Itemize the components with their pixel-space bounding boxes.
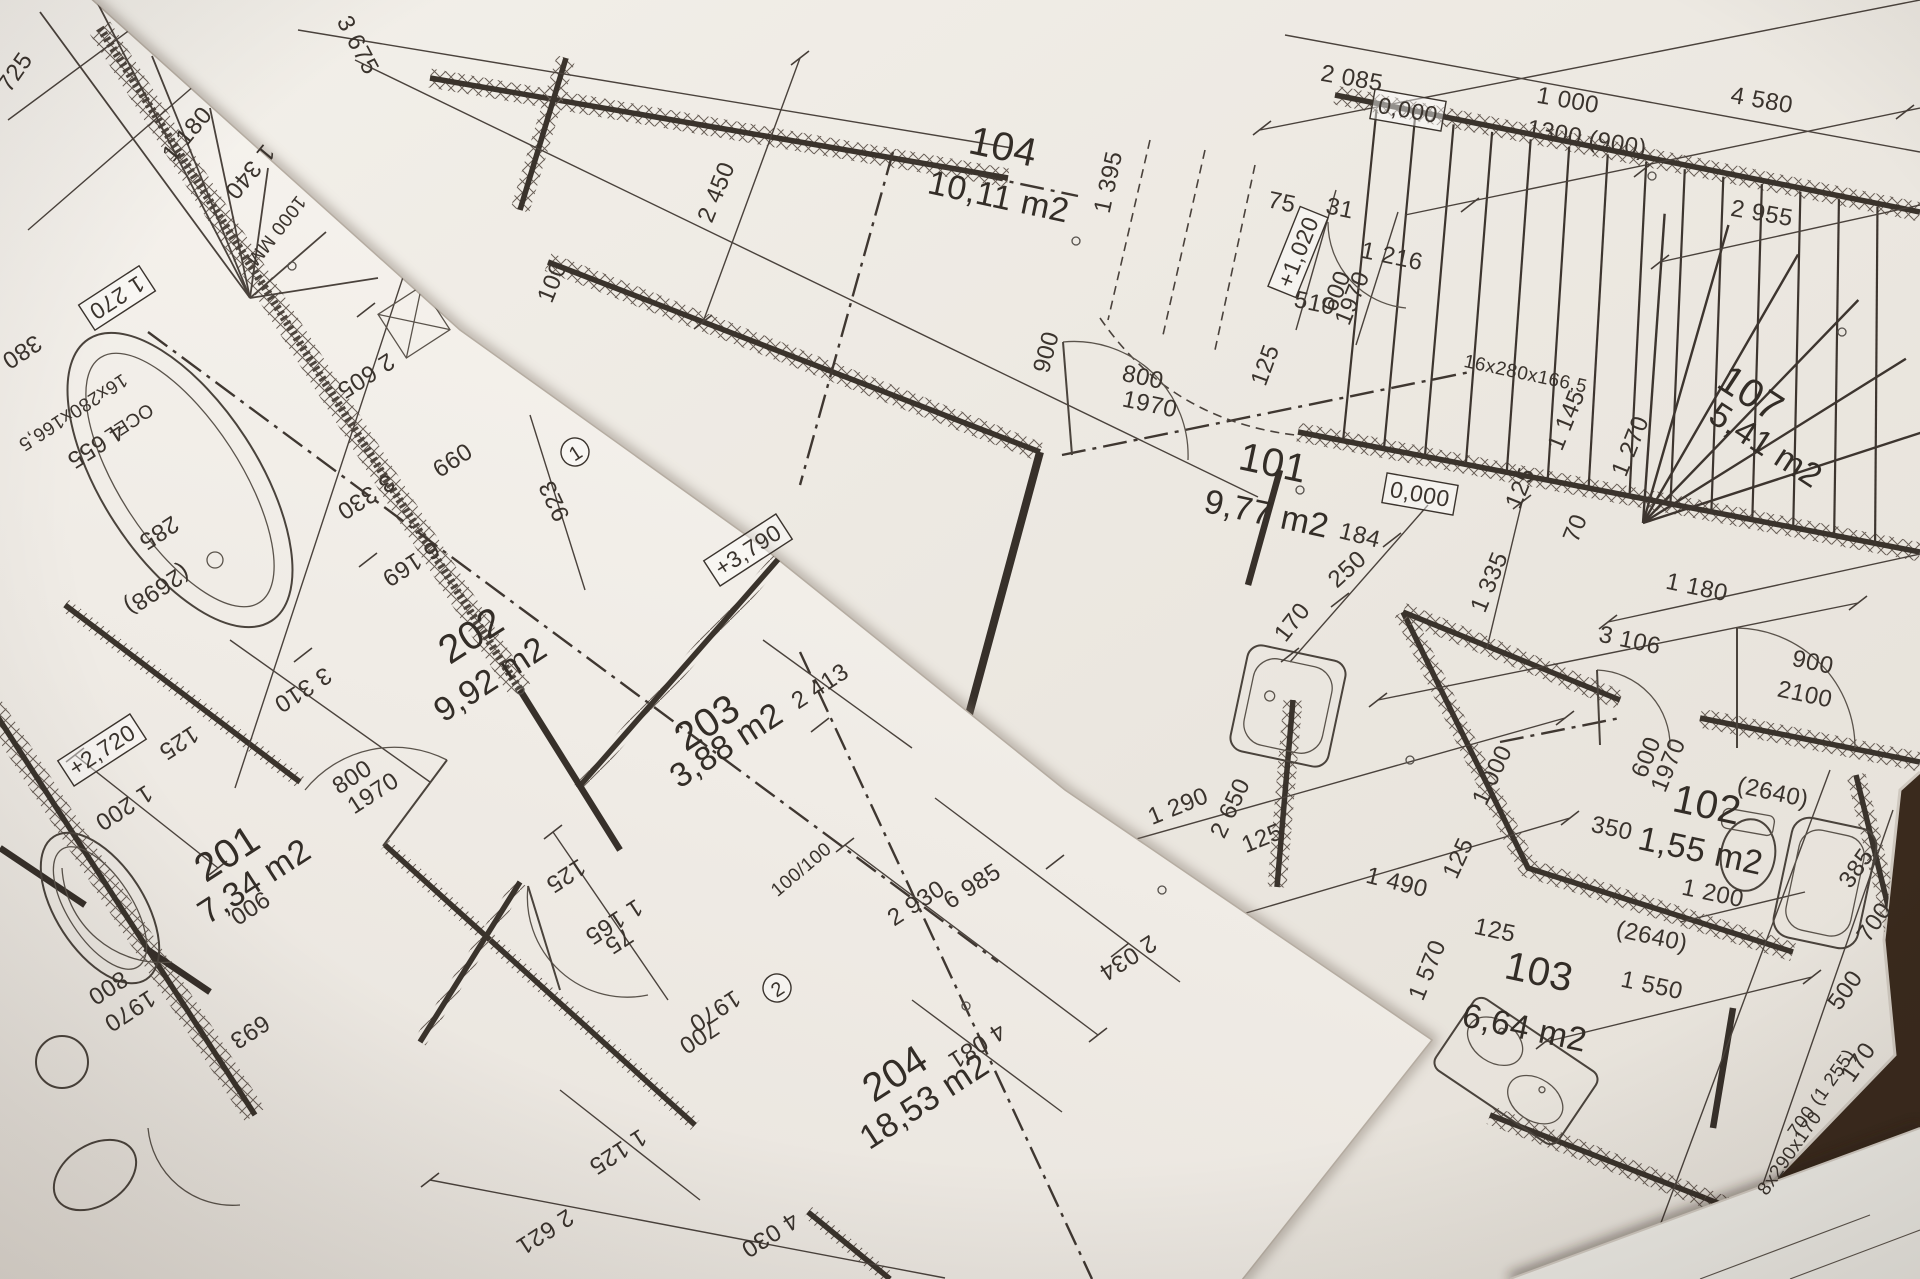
dimension-label: 75 [1266, 186, 1299, 218]
blueprint-photo: 2 0851 0001300 (900)4 5802 9553 6752 450… [0, 0, 1920, 1279]
blueprint-scene: 2 0851 0001300 (900)4 5802 9553 6752 450… [0, 0, 1920, 1279]
svg-text:31: 31 [1324, 192, 1357, 224]
svg-text:75: 75 [1266, 186, 1299, 218]
dimension-label: 31 [1324, 192, 1357, 224]
